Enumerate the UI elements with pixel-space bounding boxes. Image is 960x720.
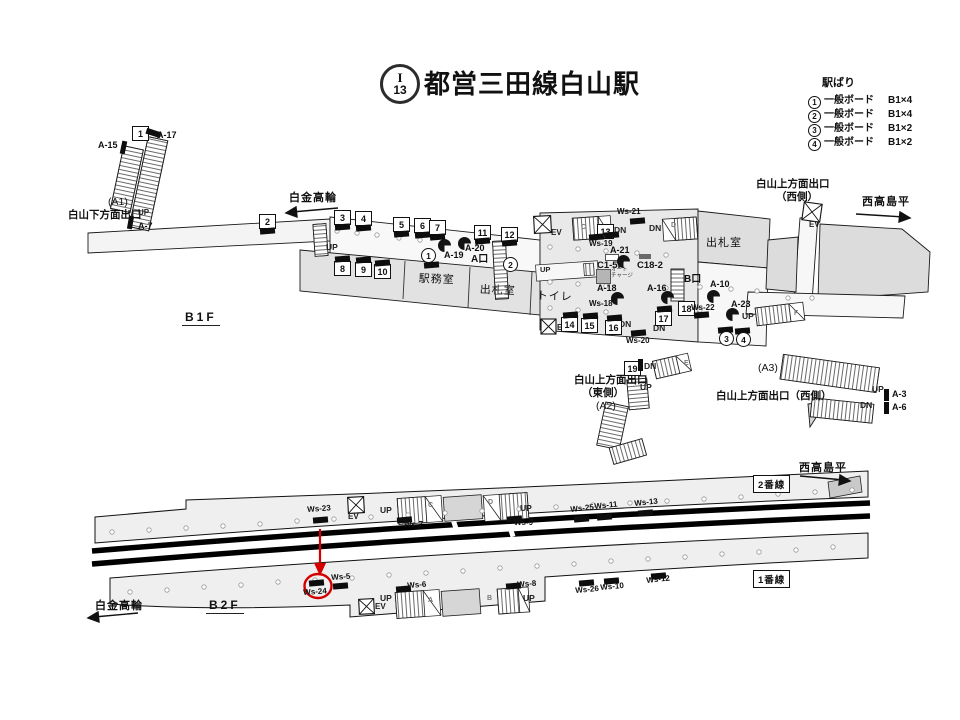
ad-pie-icon-a10 [707, 290, 720, 303]
floor-label-b2f: B2F [206, 599, 244, 614]
page-title: 都営三田線白山駅 [424, 70, 640, 99]
ws-6: Ws-6 [407, 581, 427, 591]
direction-shirokane-bottom: 白金高輪 [95, 600, 143, 612]
ws-9: Ws-9 [514, 519, 533, 528]
ad-a10: A-10 [710, 280, 730, 290]
exit-west-side-top: （西側） [776, 192, 818, 204]
ad-a6: A-6 [892, 403, 907, 413]
direction-shirokane-top: 白金高輪 [289, 192, 337, 204]
stair-letter-c: C [581, 224, 586, 232]
exit-hakusan-kami-east: 白山上方面出口 [574, 375, 648, 387]
stair-letter-f: F [794, 310, 798, 318]
ws-23: Ws-23 [307, 504, 331, 514]
board-bar-19 [638, 359, 643, 371]
line-number: 13 [393, 84, 406, 96]
ws-20: Ws-20 [626, 337, 650, 346]
ws-7: Ws-7 [404, 521, 423, 530]
ev-label-platform1: EV [375, 603, 386, 612]
ad-a17: A-17 [157, 131, 177, 141]
gate-a-label: A口 [471, 254, 488, 265]
ev-label-topright: EV [809, 221, 820, 230]
up-concourse: UP [326, 243, 338, 252]
legend-circled-4: 4 [808, 138, 821, 151]
exit-a3-label: (A3) [758, 363, 778, 375]
a3-staircase [780, 354, 880, 423]
ws-8: Ws-8 [517, 580, 537, 590]
legend-title: 駅ばり [822, 77, 855, 89]
ws-19: Ws-19 [589, 240, 613, 249]
up-platform2-left: UP [380, 506, 392, 515]
ad-a18: A-18 [597, 284, 617, 294]
ad-pie-icon-a23 [726, 308, 739, 321]
floor-label-b1f: B1F [182, 311, 220, 326]
up-a3: UP [872, 385, 884, 394]
ws-22: Ws-22 [691, 304, 715, 313]
room-shussatsushitsu-2: 出札室 [706, 237, 742, 249]
c182-bar [639, 254, 651, 259]
up-platform2-right: UP [520, 504, 532, 513]
ad-a16: A-16 [647, 284, 667, 294]
dn-stair-d: DN [649, 224, 661, 233]
up-a1: UP [138, 209, 149, 218]
board-14: 14 [561, 317, 578, 332]
circled-position-2: 2 [503, 257, 518, 272]
ws-18: Ws-18 [589, 300, 613, 309]
a6-bar [884, 402, 889, 414]
ev-label-concourse: EV [551, 229, 562, 238]
up-platform1-right: UP [523, 594, 535, 603]
direction-nishitakashimadaira-bottom: 西高島平 [799, 462, 847, 474]
exit-hakusan-kami-west-top: 白山上方面出口 [756, 179, 830, 191]
station-map: I 13 都営三田線白山駅 駅ばり 1一般ボードB1×4 2一般ボードB1×4 … [0, 0, 960, 720]
line-symbol-badge: I 13 [380, 64, 420, 104]
board-15: 15 [581, 318, 598, 333]
circled-position-4: 4 [736, 332, 751, 347]
platform-1-structures [395, 587, 530, 619]
ad-a19: A-19 [444, 251, 464, 261]
ws-5: Ws-5 [331, 573, 351, 583]
ev-label-platform2: EV [348, 513, 359, 522]
auto-charge-line2: チャージ [611, 274, 633, 280]
legend-size-4: B1×2 [888, 137, 912, 148]
up-a2: UP [640, 383, 652, 392]
track-2-label: 2番線 [753, 475, 790, 493]
ad-a15: A-15 [98, 141, 118, 151]
stair-letter-b: B [487, 595, 492, 603]
ad-a3: A-3 [892, 390, 907, 400]
exit-hakusan-kami-west-inline: 白山上方面出口（西側） [716, 391, 832, 403]
board-16: 16 [605, 320, 622, 335]
auto-charge-machine-icon [596, 269, 611, 284]
circled-position-1: 1 [421, 248, 436, 263]
direction-nishitakashimadaira-top: 西高島平 [862, 196, 910, 208]
gate-b-label: B口 [684, 274, 701, 285]
dn-board19: DN [644, 362, 656, 371]
up-right-exit: UP [742, 312, 754, 321]
board-8: 8 [334, 261, 351, 276]
board-9: 9 [355, 262, 372, 277]
dn-a3: DN [860, 401, 872, 410]
room-toilet: トイレ [537, 290, 573, 303]
ad-c182: C18-2 [637, 261, 663, 271]
stair-letter-d: D [671, 222, 676, 230]
up-toilet-alcove: UP [540, 266, 550, 274]
ad-a20: A-20 [465, 244, 485, 254]
room-ekimushitsu: 駅務室 [419, 273, 455, 286]
stair-letter-d2: D [488, 499, 493, 507]
track-1-label: 1番線 [753, 570, 790, 588]
circled-position-3: 3 [719, 331, 734, 346]
stair-letter-c2: C [428, 502, 433, 510]
exit-east-side: （東側） [582, 388, 624, 400]
exit-a1-label: (A1) [108, 197, 128, 209]
room-shussatsushitsu: 出札室 [480, 284, 516, 297]
exit-a2-label: (A2) [596, 401, 616, 413]
a3-bar [884, 389, 889, 401]
board-17: 17 [655, 311, 672, 326]
stair-letter-e: E [684, 360, 689, 368]
stair-letter-a: A [428, 597, 433, 605]
ws-21: Ws-21 [617, 208, 641, 217]
legend-label-4: 一般ボード [824, 137, 874, 148]
ws-24: Ws-24 [303, 587, 327, 597]
ad-a7: A-7 [138, 222, 153, 232]
legend-row-4: 4一般ボードB1×2 [808, 133, 912, 151]
concourse-stair-d [662, 217, 697, 241]
ad-a23: A-23 [731, 300, 751, 310]
